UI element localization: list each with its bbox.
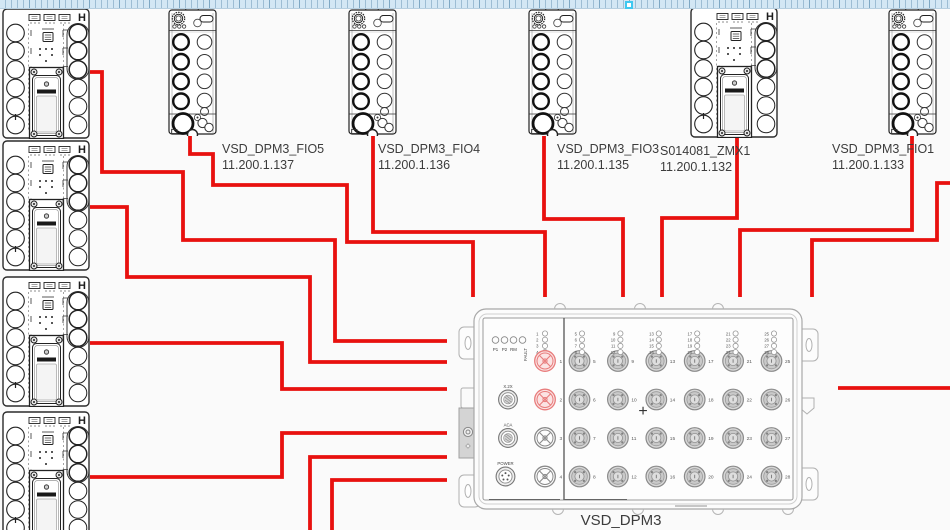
- wire-zmx1-to-dpm3[interactable]: [662, 138, 737, 297]
- device-fio5[interactable]: [169, 5, 216, 140]
- svg-text:3: 3: [560, 436, 563, 442]
- device-valve-terminal-3[interactable]: [3, 277, 89, 407]
- svg-text:13: 13: [670, 359, 676, 365]
- wire-offscreen-right-top[interactable]: [812, 183, 950, 297]
- svg-text:18: 18: [688, 338, 693, 343]
- svg-text:6: 6: [593, 398, 596, 404]
- dpm3-port-10[interactable]: [608, 389, 629, 410]
- connector-aca[interactable]: [499, 429, 518, 448]
- device-fio3[interactable]: [529, 5, 576, 140]
- svg-text:2: 2: [560, 398, 563, 404]
- svg-text:10: 10: [611, 338, 616, 343]
- device-valve-terminal-2[interactable]: [3, 141, 89, 271]
- wire-terminal3-to-dpm3[interactable]: [90, 343, 447, 389]
- svg-text:24: 24: [747, 475, 753, 481]
- horizontal-ruler: [0, 0, 950, 9]
- svg-text:21: 21: [726, 331, 731, 336]
- svg-text:16: 16: [649, 350, 654, 355]
- svg-text:POWER: POWER: [497, 461, 513, 466]
- svg-text:19: 19: [688, 344, 693, 349]
- dpm3-port-5[interactable]: [569, 351, 590, 372]
- svg-text:19: 19: [708, 436, 714, 442]
- svg-text:14: 14: [670, 398, 676, 404]
- dpm3-port-14[interactable]: [646, 389, 667, 410]
- dpm3-port-26[interactable]: [761, 389, 782, 410]
- svg-text:22: 22: [726, 338, 731, 343]
- svg-text:P2: P2: [502, 347, 508, 352]
- svg-text:14: 14: [649, 338, 654, 343]
- svg-text:25: 25: [785, 359, 791, 365]
- svg-text:11: 11: [611, 344, 616, 349]
- svg-text:28: 28: [764, 350, 769, 355]
- svg-text:X.2X: X.2X: [503, 384, 512, 389]
- dpm3-port-18[interactable]: [684, 389, 705, 410]
- dpm3-port-28[interactable]: [761, 466, 782, 487]
- svg-text:23: 23: [747, 436, 753, 442]
- svg-text:23: 23: [726, 344, 731, 349]
- ruler-handle[interactable]: [625, 1, 633, 9]
- svg-text:12: 12: [611, 350, 616, 355]
- status-led-rm: [510, 337, 517, 344]
- dpm3-port-8[interactable]: [569, 466, 590, 487]
- wire-offscreen-bottom-b[interactable]: [332, 480, 447, 530]
- dpm3-port-16[interactable]: [646, 466, 667, 487]
- connector-x2x[interactable]: [499, 390, 518, 409]
- svg-text:P1: P1: [493, 347, 499, 352]
- dpm3-port-6[interactable]: [569, 389, 590, 410]
- svg-text:1: 1: [560, 359, 563, 365]
- svg-text:25: 25: [764, 331, 769, 336]
- device-fio4[interactable]: [349, 5, 396, 140]
- device-fio1[interactable]: [889, 5, 936, 140]
- svg-text:ACA: ACA: [504, 423, 513, 428]
- device-zmx1[interactable]: [691, 8, 777, 138]
- svg-text:20: 20: [708, 475, 714, 481]
- svg-text:RM: RM: [510, 347, 517, 352]
- svg-text:13: 13: [649, 331, 654, 336]
- dpm3-port-2[interactable]: [535, 389, 556, 410]
- svg-text:27: 27: [785, 436, 791, 442]
- svg-text:22: 22: [747, 398, 753, 404]
- svg-text:8: 8: [593, 475, 596, 481]
- device-valve-terminal-4[interactable]: [3, 412, 89, 530]
- status-led-p1: [492, 337, 499, 344]
- svg-text:17: 17: [708, 359, 714, 365]
- dpm3-port-11[interactable]: [608, 428, 629, 449]
- center-cross-mark: +: [638, 403, 647, 420]
- status-led-fault: [519, 337, 526, 344]
- svg-text:21: 21: [747, 359, 753, 365]
- svg-text:18: 18: [708, 398, 714, 404]
- svg-text:4: 4: [560, 475, 563, 481]
- svg-text:16: 16: [670, 475, 676, 481]
- svg-text:15: 15: [649, 344, 654, 349]
- svg-text:FAULT: FAULT: [523, 348, 528, 361]
- dpm3-port-24[interactable]: [723, 466, 744, 487]
- svg-text:26: 26: [785, 398, 791, 404]
- status-led-p2: [501, 337, 508, 344]
- svg-text:24: 24: [726, 350, 731, 355]
- svg-text:27: 27: [764, 344, 769, 349]
- dpm3-port-7[interactable]: [569, 428, 590, 449]
- diagram-layer: P1P2RMFAULT12341234X.2XACAPOWER556677889…: [0, 0, 950, 530]
- dpm3-port-22[interactable]: [723, 389, 744, 410]
- svg-text:26: 26: [764, 338, 769, 343]
- wire-fio1-to-dpm3[interactable]: [740, 136, 912, 297]
- wire-fio3-to-dpm3[interactable]: [544, 136, 623, 297]
- dpm3-port-27[interactable]: [761, 428, 782, 449]
- svg-text:17: 17: [688, 331, 693, 336]
- svg-text:28: 28: [785, 475, 791, 481]
- dpm3-device-label: VSD_DPM3: [561, 512, 681, 529]
- diagram-canvas[interactable]: P1P2RMFAULT12341234X.2XACAPOWER556677889…: [0, 0, 950, 530]
- dpm3-port-15[interactable]: [646, 428, 667, 449]
- device-vsd-dpm3[interactable]: P1P2RMFAULT12341234X.2XACAPOWER556677889…: [459, 304, 818, 515]
- svg-text:12: 12: [631, 475, 637, 481]
- svg-text:10: 10: [631, 398, 637, 404]
- dpm3-port-23[interactable]: [723, 428, 744, 449]
- svg-text:15: 15: [670, 436, 676, 442]
- device-valve-terminal-1[interactable]: [3, 9, 89, 139]
- svg-text:9: 9: [631, 359, 634, 365]
- wire-fio4-to-dpm3[interactable]: [373, 136, 545, 297]
- svg-text:7: 7: [593, 436, 596, 442]
- svg-text:20: 20: [688, 350, 693, 355]
- svg-text:5: 5: [593, 359, 596, 365]
- dpm3-port-20[interactable]: [684, 466, 705, 487]
- wire-fio5-to-dpm3[interactable]: [190, 136, 473, 297]
- dpm3-port-1[interactable]: [535, 351, 556, 372]
- wire-terminal4-to-dpm3[interactable]: [90, 433, 447, 477]
- connector-power[interactable]: [496, 467, 515, 486]
- dpm3-port-19[interactable]: [684, 428, 705, 449]
- dpm3-port-12[interactable]: [608, 466, 629, 487]
- svg-text:11: 11: [631, 436, 636, 442]
